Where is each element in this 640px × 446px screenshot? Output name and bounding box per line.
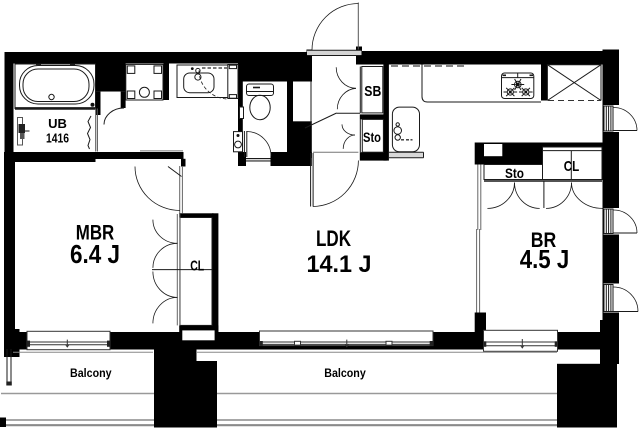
svg-text:Balcony: Balcony bbox=[324, 367, 366, 380]
svg-text:UB: UB bbox=[48, 116, 67, 131]
svg-text:Sto: Sto bbox=[505, 166, 524, 181]
svg-text:CL: CL bbox=[190, 257, 204, 274]
svg-text:4.5 J: 4.5 J bbox=[520, 246, 570, 274]
svg-text:6.4 J: 6.4 J bbox=[70, 241, 120, 269]
svg-text:LDK: LDK bbox=[316, 226, 351, 251]
svg-text:SB: SB bbox=[364, 83, 381, 100]
svg-text:1416: 1416 bbox=[46, 132, 69, 146]
svg-text:CL: CL bbox=[564, 158, 580, 175]
svg-text:Balcony: Balcony bbox=[70, 367, 112, 380]
svg-text:Sto: Sto bbox=[363, 130, 381, 145]
svg-text:14.1 J: 14.1 J bbox=[307, 251, 372, 278]
